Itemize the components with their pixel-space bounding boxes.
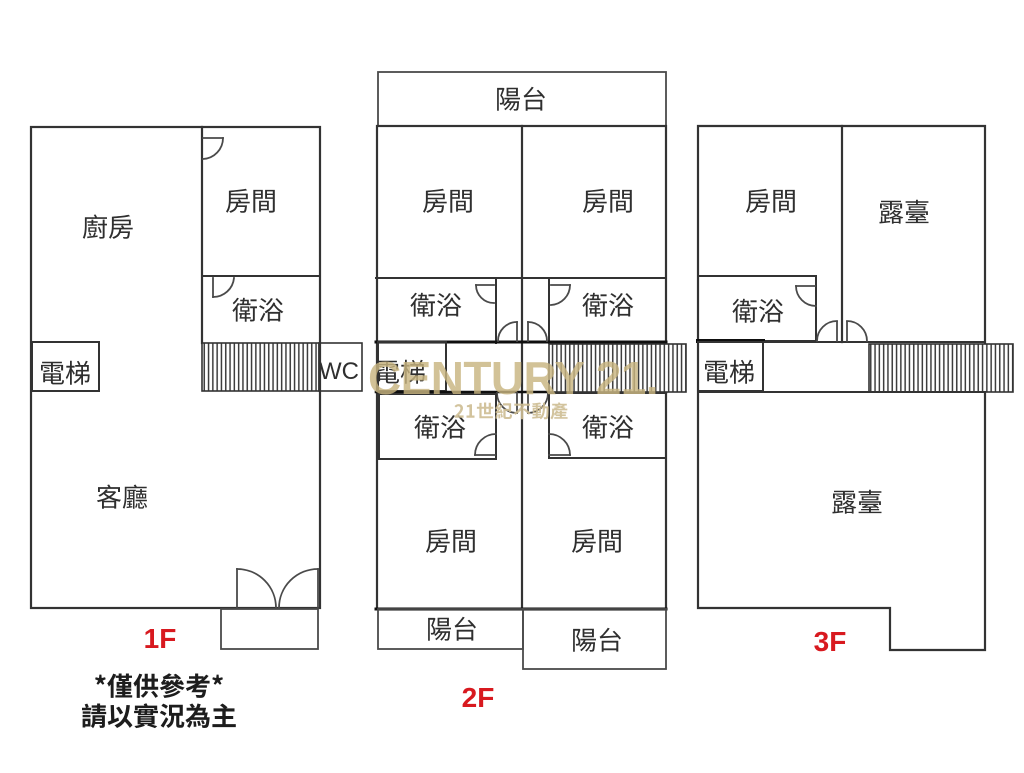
svg-text:CENTURY 21.: CENTURY 21. — [368, 352, 658, 404]
svg-text:1F: 1F — [144, 623, 177, 654]
svg-text:3F: 3F — [814, 626, 847, 657]
svg-text:2F: 2F — [462, 682, 495, 713]
svg-text:WC: WC — [319, 358, 359, 385]
